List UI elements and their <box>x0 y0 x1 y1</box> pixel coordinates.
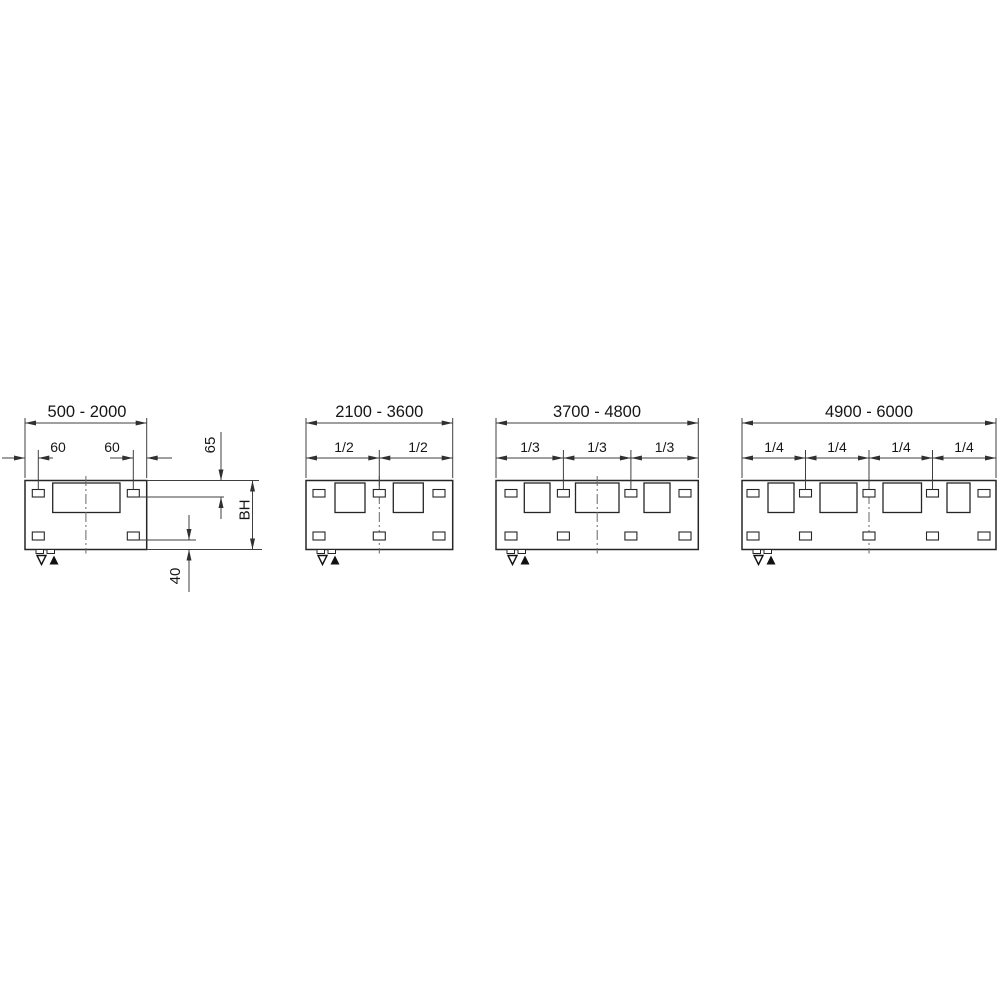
mounting-bracket <box>927 532 939 540</box>
element-window <box>644 483 670 513</box>
mounting-bracket <box>978 532 990 540</box>
top-offset-dimension-label: 65 <box>202 437 219 454</box>
range-dimension-label: 500 - 2000 <box>48 403 127 421</box>
bottom-tab <box>764 550 772 554</box>
bottom-tab <box>317 550 325 554</box>
mounting-bracket <box>557 490 569 498</box>
bottom-offset-dimension-label: 40 <box>167 568 184 585</box>
mounting-bracket <box>373 532 385 540</box>
vent-triangle-icon <box>508 556 517 565</box>
mounting-bracket <box>32 490 44 498</box>
fraction-dimension-label: 1/4 <box>891 439 911 455</box>
mounting-bracket <box>313 532 325 540</box>
offset-dimension-label: 60 <box>50 439 66 455</box>
fraction-dimension-label: 1/4 <box>954 439 974 455</box>
range-dimension-label: 2100 - 3600 <box>335 403 423 421</box>
mounting-bracket <box>625 532 637 540</box>
offset-dimension-label: 60 <box>104 439 120 455</box>
fraction-dimension-label: 1/4 <box>827 439 847 455</box>
drain-triangle-icon <box>521 556 530 565</box>
mounting-bracket <box>505 490 517 498</box>
drain-triangle-icon <box>767 556 776 565</box>
mounting-bracket <box>927 490 939 498</box>
technical-drawing-canvas: 500 - 2000 60 60 65 BH 40 <box>0 0 1000 1000</box>
element-window <box>768 483 794 513</box>
mounting-bracket <box>800 532 812 540</box>
fraction-dimension-label: 1/3 <box>520 439 540 455</box>
element-window <box>524 483 550 513</box>
vent-triangle-icon <box>754 556 763 565</box>
range-dimension-label: 3700 - 4800 <box>553 403 641 421</box>
mounting-bracket <box>625 490 637 498</box>
fraction-dimension-label: 1/3 <box>655 439 675 455</box>
diagram-width-500-2000: 500 - 2000 60 60 65 BH 40 <box>2 403 262 592</box>
mounting-bracket <box>800 490 812 498</box>
mounting-bracket <box>32 532 44 540</box>
mounting-bracket <box>863 532 875 540</box>
vent-triangle-icon <box>37 556 46 565</box>
element-window <box>947 483 970 513</box>
mounting-bracket <box>747 532 759 540</box>
bottom-tab <box>507 550 515 554</box>
bottom-tab <box>36 550 44 554</box>
diagram-width-4900-6000: 4900 - 6000 1/4 1/4 1/4 1/4 <box>742 403 996 565</box>
fraction-dimension-label: 1/4 <box>764 439 784 455</box>
vent-triangle-icon <box>318 556 327 565</box>
bottom-tab <box>328 550 336 554</box>
mounting-bracket <box>747 490 759 498</box>
mounting-bracket <box>505 532 517 540</box>
mounting-bracket <box>557 532 569 540</box>
mounting-bracket <box>313 490 325 498</box>
mounting-bracket <box>863 490 875 498</box>
mounting-bracket <box>978 490 990 498</box>
drain-triangle-icon <box>50 556 59 565</box>
element-window <box>883 483 922 513</box>
bottom-tab <box>753 550 761 554</box>
fraction-dimension-label: 1/2 <box>334 439 354 455</box>
bottom-tab <box>518 550 526 554</box>
range-dimension-label: 4900 - 6000 <box>825 403 913 421</box>
diagram-width-2100-3600: 2100 - 3600 1/2 1/2 <box>306 403 453 565</box>
element-window <box>393 483 423 513</box>
drain-triangle-icon <box>331 556 340 565</box>
mounting-bracket <box>433 532 445 540</box>
bottom-tab <box>47 550 55 554</box>
mounting-bracket <box>127 490 139 498</box>
mounting-bracket <box>679 490 691 498</box>
mounting-bracket <box>373 490 385 498</box>
diagram-width-3700-4800: 3700 - 4800 1/3 1/3 1/3 <box>496 403 698 565</box>
mounting-bracket <box>433 490 445 498</box>
element-window <box>335 483 365 513</box>
build-height-dimension-label: BH <box>237 500 254 521</box>
technical-drawing: 500 - 2000 60 60 65 BH 40 <box>0 0 1000 1000</box>
fraction-dimension-label: 1/3 <box>587 439 607 455</box>
mounting-bracket <box>679 532 691 540</box>
mounting-bracket <box>127 532 139 540</box>
element-window <box>820 483 857 513</box>
fraction-dimension-label: 1/2 <box>408 439 428 455</box>
